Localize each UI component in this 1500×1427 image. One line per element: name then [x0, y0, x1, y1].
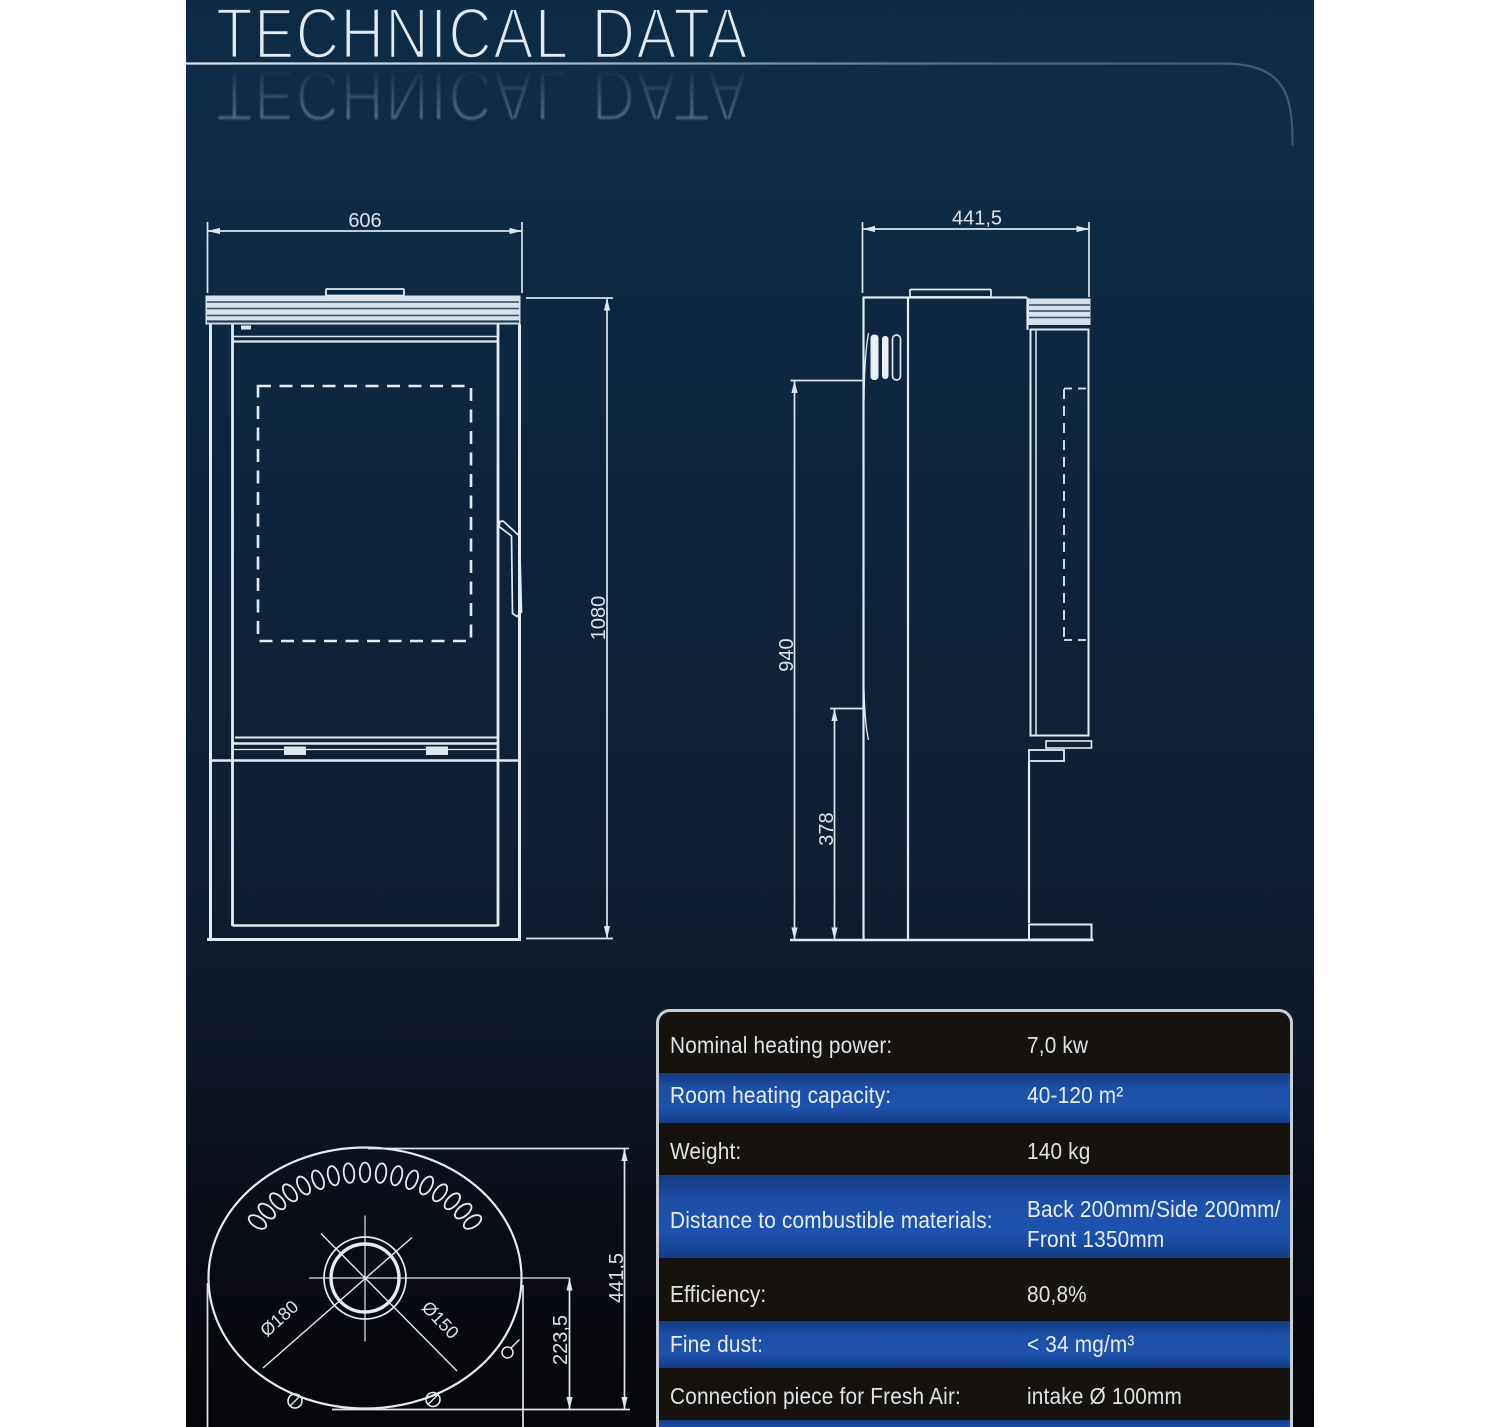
svg-text:Ø150: Ø150 [418, 1297, 463, 1343]
svg-text:378: 378 [816, 812, 838, 845]
svg-text:606: 606 [348, 210, 381, 232]
svg-text:940: 940 [776, 638, 798, 671]
svg-text:Ø180: Ø180 [256, 1296, 302, 1340]
svg-text:441,5: 441,5 [606, 1253, 628, 1303]
svg-text:223,5: 223,5 [550, 1315, 572, 1365]
svg-text:1080: 1080 [588, 596, 610, 641]
svg-text:441,5: 441,5 [952, 208, 1002, 230]
